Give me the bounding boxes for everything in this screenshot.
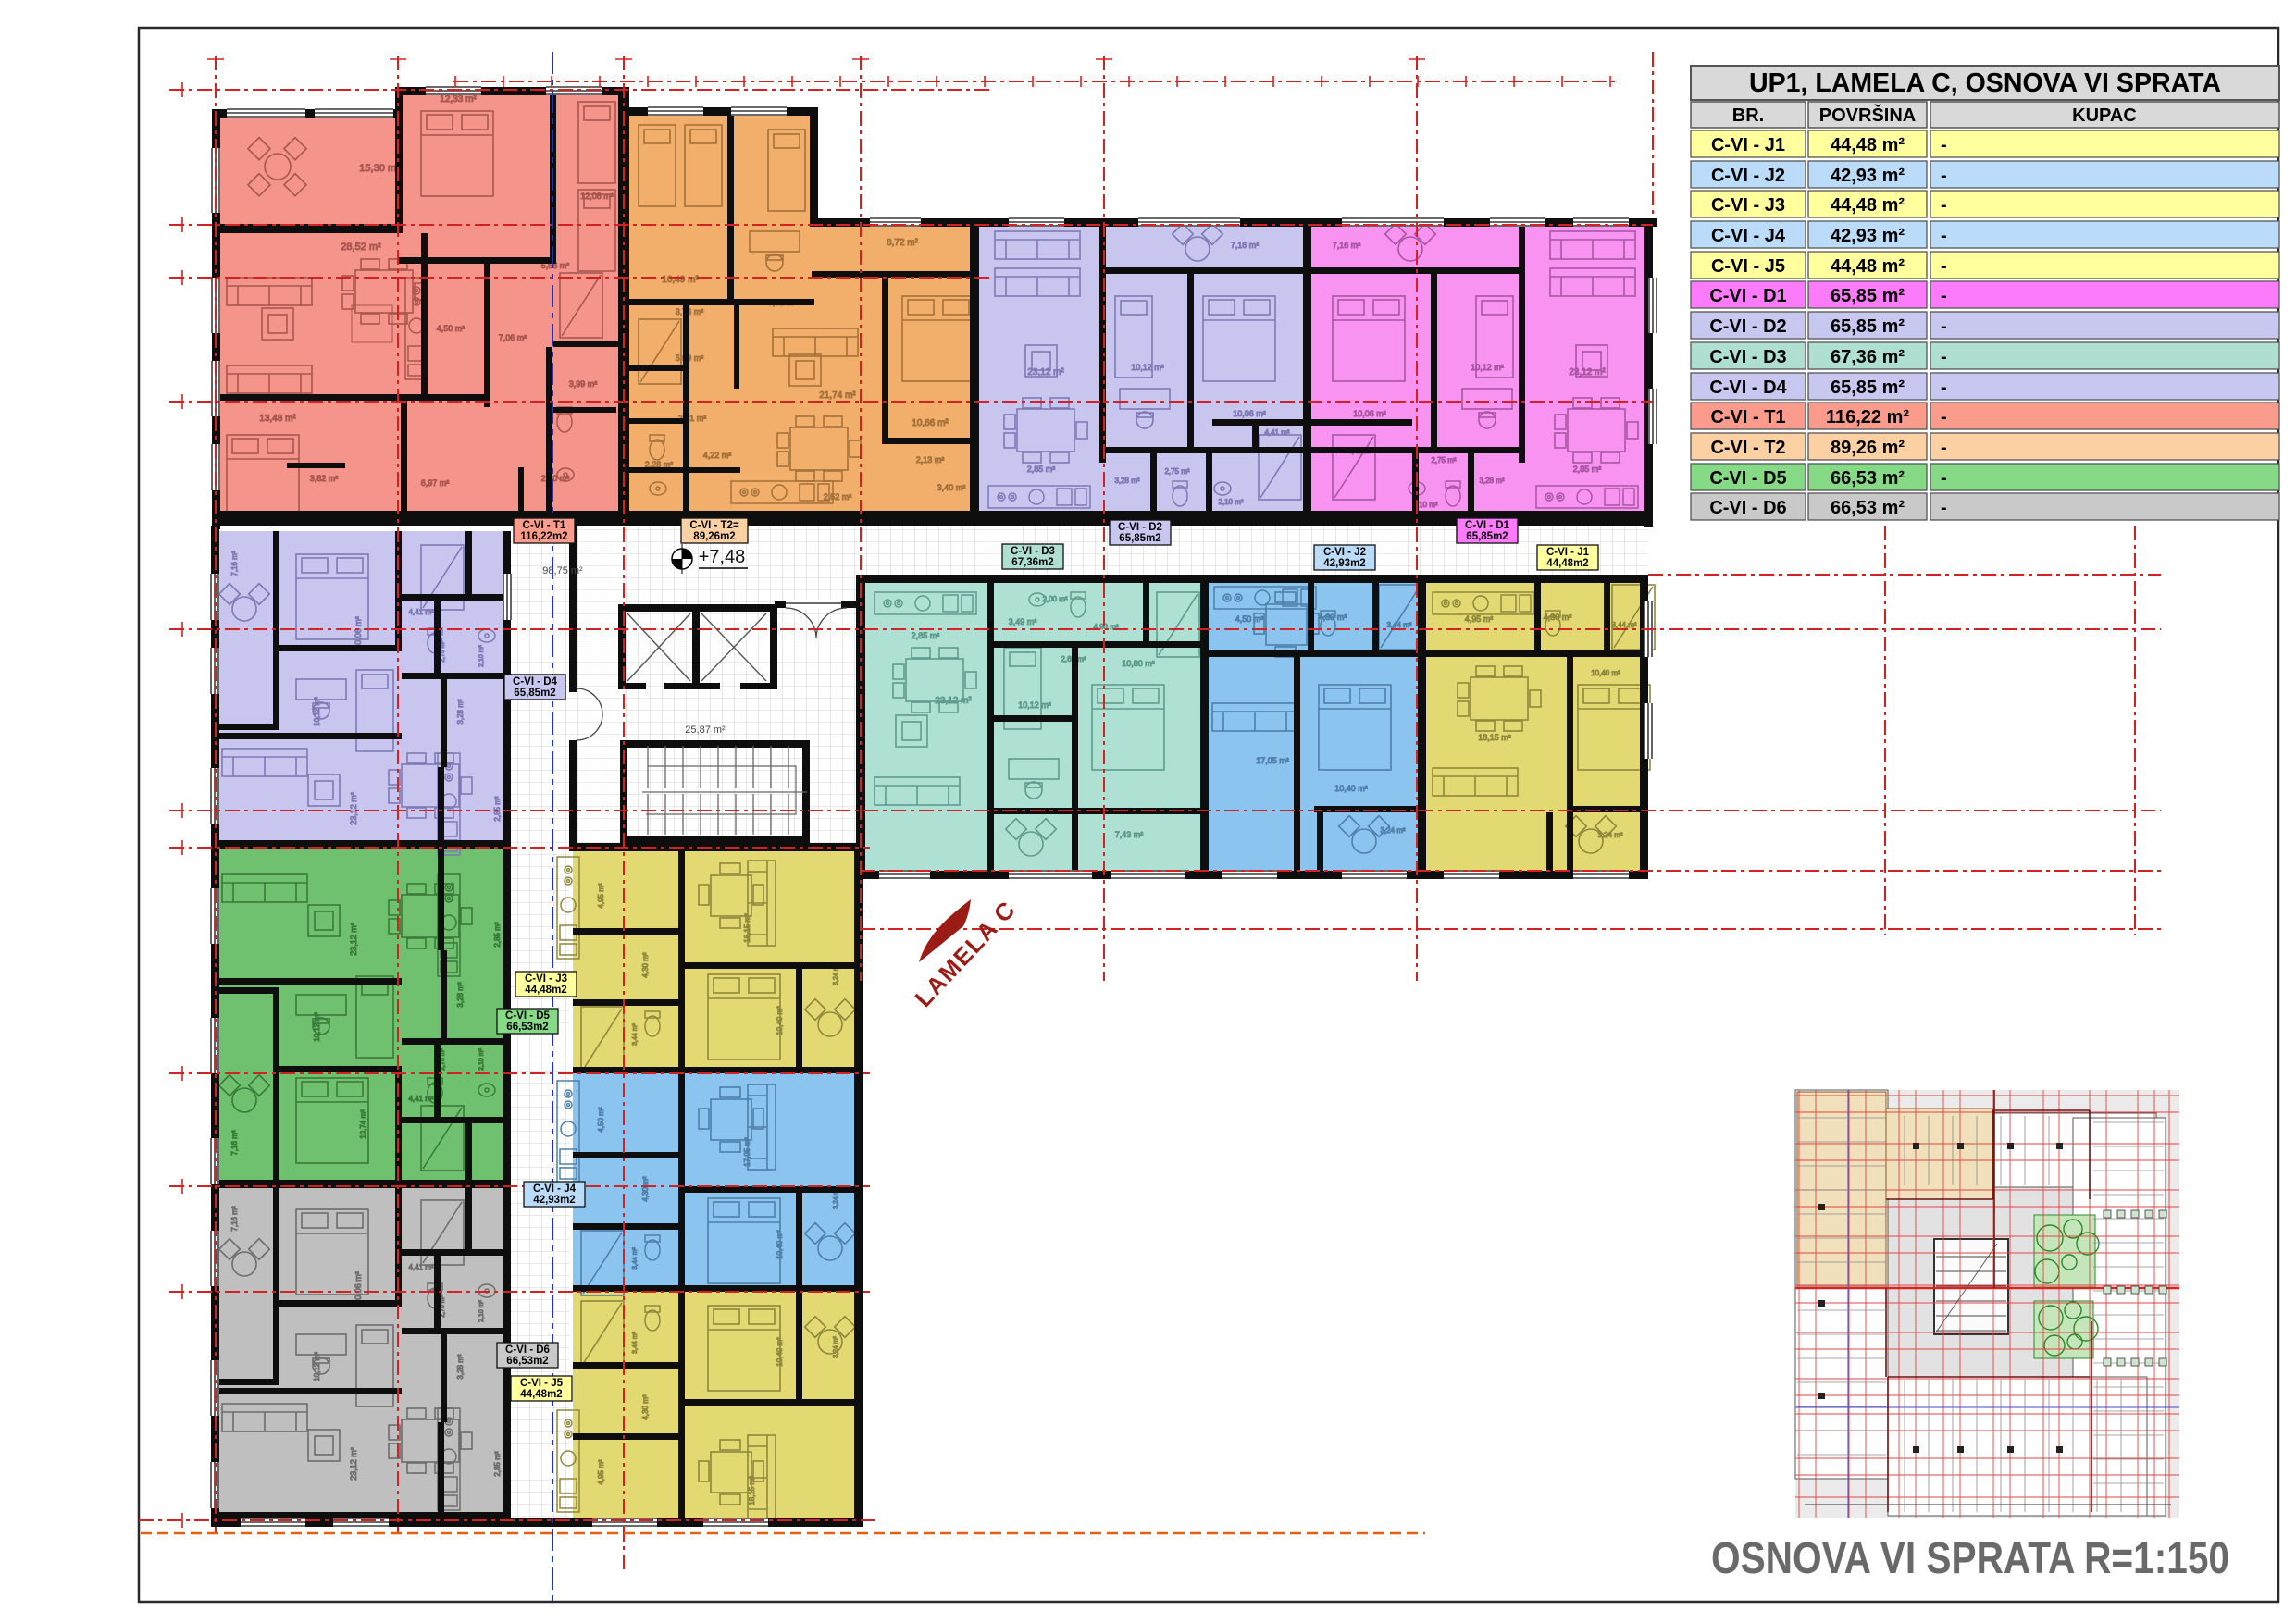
svg-text:-: - bbox=[1941, 438, 1947, 458]
svg-text:C-VI - D4: C-VI - D4 bbox=[513, 676, 558, 688]
svg-text:C-VI - J2: C-VI - J2 bbox=[1711, 166, 1785, 186]
svg-text:10,40 m²: 10,40 m² bbox=[1334, 784, 1368, 793]
svg-text:3,28 m²: 3,28 m² bbox=[456, 699, 465, 724]
svg-text:44,48 m²: 44,48 m² bbox=[1831, 195, 1905, 216]
svg-text:-: - bbox=[1941, 286, 1947, 306]
svg-text:C-VI - T1: C-VI - T1 bbox=[523, 520, 566, 531]
svg-text:44,48 m²: 44,48 m² bbox=[1831, 256, 1905, 277]
svg-text:18,15 m²: 18,15 m² bbox=[1478, 733, 1511, 742]
svg-text:23,12 m²: 23,12 m² bbox=[349, 923, 358, 956]
svg-text:C-VI - T2=: C-VI - T2= bbox=[689, 520, 739, 531]
svg-text:2,10 m²: 2,10 m² bbox=[478, 1047, 485, 1070]
svg-text:3,28 m²: 3,28 m² bbox=[1479, 477, 1504, 485]
svg-text:66,53 m²: 66,53 m² bbox=[1831, 468, 1905, 489]
svg-text:-: - bbox=[1941, 256, 1947, 277]
svg-text:65,85 m²: 65,85 m² bbox=[1831, 316, 1905, 337]
svg-text:C-VI - D4: C-VI - D4 bbox=[1709, 378, 1787, 398]
svg-text:-: - bbox=[1941, 347, 1947, 367]
svg-text:44,48m2: 44,48m2 bbox=[525, 985, 566, 996]
svg-text:10,12 m²: 10,12 m² bbox=[1471, 363, 1504, 372]
svg-text:66,53m2: 66,53m2 bbox=[506, 1356, 548, 1367]
svg-text:3,44 m²: 3,44 m² bbox=[632, 1246, 639, 1269]
svg-text:15,30 m²: 15,30 m² bbox=[359, 163, 400, 174]
svg-text:4,30 m²: 4,30 m² bbox=[641, 1176, 650, 1201]
svg-text:3,44 m²: 3,44 m² bbox=[632, 1331, 639, 1353]
svg-text:C-VI - D5: C-VI - D5 bbox=[1709, 468, 1786, 489]
svg-text:C-VI - D1: C-VI - D1 bbox=[1465, 520, 1510, 531]
svg-text:-: - bbox=[1941, 316, 1947, 337]
svg-text:3,44 m²: 3,44 m² bbox=[632, 1022, 639, 1045]
svg-text:4,41 m²: 4,41 m² bbox=[408, 1095, 433, 1103]
svg-text:2,10 m²: 2,10 m² bbox=[1218, 498, 1243, 506]
svg-text:10,06 m²: 10,06 m² bbox=[1353, 409, 1386, 418]
svg-text:2,75 m²: 2,75 m² bbox=[440, 1295, 446, 1317]
svg-text:10,12 m²: 10,12 m² bbox=[313, 1012, 321, 1042]
svg-text:23,12 m²: 23,12 m² bbox=[349, 792, 358, 825]
svg-text:2,85 m²: 2,85 m² bbox=[1573, 465, 1602, 474]
svg-text:2,75 m²: 2,75 m² bbox=[1164, 467, 1189, 476]
svg-text:6,97 m²: 6,97 m² bbox=[421, 478, 450, 488]
svg-text:44,48m2: 44,48m2 bbox=[520, 1389, 562, 1400]
svg-text:65,85 m²: 65,85 m² bbox=[1831, 286, 1905, 306]
svg-text:44,48m2: 44,48m2 bbox=[1546, 558, 1588, 569]
svg-text:10,49 m²: 10,49 m² bbox=[662, 275, 699, 285]
svg-text:89,26 m²: 89,26 m² bbox=[1831, 438, 1905, 458]
svg-text:10,40 m²: 10,40 m² bbox=[776, 1006, 784, 1035]
svg-text:2,85 m²: 2,85 m² bbox=[493, 796, 502, 821]
svg-text:10,74 m²: 10,74 m² bbox=[359, 1109, 367, 1139]
svg-text:66,53 m²: 66,53 m² bbox=[1831, 498, 1905, 518]
svg-text:25,87 m²: 25,87 m² bbox=[685, 725, 726, 736]
svg-text:POVRŠINA: POVRŠINA bbox=[1819, 104, 1916, 126]
svg-text:42,93 m²: 42,93 m² bbox=[1831, 166, 1905, 186]
svg-text:4,50 m²: 4,50 m² bbox=[597, 1107, 605, 1132]
svg-text:C-VI - J5: C-VI - J5 bbox=[1711, 256, 1785, 277]
svg-text:17,05 m²: 17,05 m² bbox=[1256, 756, 1289, 765]
svg-text:98,75 m²: 98,75 m² bbox=[542, 565, 583, 576]
svg-text:65,85m2: 65,85m2 bbox=[1466, 531, 1508, 542]
svg-text:7,16 m²: 7,16 m² bbox=[1231, 241, 1260, 250]
svg-text:66,53m2: 66,53m2 bbox=[506, 1022, 548, 1033]
svg-text:42,93m2: 42,93m2 bbox=[1323, 558, 1365, 569]
svg-text:12,08 m²: 12,08 m² bbox=[580, 192, 614, 201]
svg-text:65,85m2: 65,85m2 bbox=[514, 688, 555, 699]
svg-text:7,16 m²: 7,16 m² bbox=[230, 1206, 239, 1231]
svg-text:7,06 m²: 7,06 m² bbox=[499, 333, 527, 342]
svg-text:7,16 m²: 7,16 m² bbox=[1333, 241, 1361, 250]
svg-text:C-VI - D2: C-VI - D2 bbox=[1709, 316, 1786, 337]
svg-text:2,85 m²: 2,85 m² bbox=[912, 631, 940, 640]
svg-text:10,12 m²: 10,12 m² bbox=[1018, 700, 1051, 710]
svg-text:10,40 m²: 10,40 m² bbox=[1591, 669, 1620, 677]
svg-text:4,50 m²: 4,50 m² bbox=[437, 324, 465, 333]
svg-text:-: - bbox=[1941, 498, 1947, 518]
svg-text:4,22 m²: 4,22 m² bbox=[703, 451, 732, 460]
svg-text:65,85 m²: 65,85 m² bbox=[1831, 378, 1905, 398]
svg-text:2,75 m²: 2,75 m² bbox=[440, 639, 446, 662]
svg-text:C-VI - J3: C-VI - J3 bbox=[525, 973, 567, 985]
svg-text:2,52 m²: 2,52 m² bbox=[824, 492, 852, 502]
svg-text:10,80 m²: 10,80 m² bbox=[1122, 659, 1155, 668]
svg-text:UP1, LAMELA C, OSNOVA VI SPRAT: UP1, LAMELA C, OSNOVA VI SPRATA bbox=[1749, 68, 2221, 98]
svg-text:65,85m2: 65,85m2 bbox=[1119, 533, 1160, 544]
svg-text:3,28 m²: 3,28 m² bbox=[456, 982, 465, 1007]
svg-text:42,93m2: 42,93m2 bbox=[533, 1195, 575, 1206]
svg-text:C-VI - J4: C-VI - J4 bbox=[533, 1183, 577, 1195]
svg-text:7,16 m²: 7,16 m² bbox=[230, 551, 239, 576]
svg-text:116,22m2: 116,22m2 bbox=[520, 531, 567, 542]
svg-text:4,95 m²: 4,95 m² bbox=[1465, 614, 1494, 624]
svg-text:-: - bbox=[1941, 195, 1947, 216]
svg-text:18,15 m²: 18,15 m² bbox=[743, 913, 751, 943]
svg-text:89,26m2: 89,26m2 bbox=[693, 531, 735, 542]
svg-text:2,10 m²: 2,10 m² bbox=[478, 1299, 485, 1321]
svg-text:-: - bbox=[1941, 226, 1947, 246]
svg-text:10,66 m²: 10,66 m² bbox=[912, 418, 949, 428]
svg-text:2,85 m²: 2,85 m² bbox=[493, 922, 502, 947]
svg-text:3,44 m²: 3,44 m² bbox=[1611, 621, 1636, 629]
svg-text:+7,48: +7,48 bbox=[699, 547, 746, 567]
svg-text:C-VI - D1: C-VI - D1 bbox=[1709, 286, 1786, 306]
svg-text:-: - bbox=[1941, 378, 1947, 398]
svg-text:BR.: BR. bbox=[1732, 105, 1764, 126]
svg-text:4,41 m²: 4,41 m² bbox=[408, 608, 433, 616]
svg-text:3,28 m²: 3,28 m² bbox=[1114, 477, 1139, 485]
svg-text:3,40 m²: 3,40 m² bbox=[937, 483, 966, 492]
svg-text:2,10 m²: 2,10 m² bbox=[478, 644, 485, 666]
svg-text:2,85 m²: 2,85 m² bbox=[493, 1451, 502, 1476]
svg-text:2,70 m²: 2,70 m² bbox=[541, 474, 570, 483]
svg-text:3,24 m²: 3,24 m² bbox=[1380, 826, 1405, 835]
svg-text:28,52 m²: 28,52 m² bbox=[341, 242, 381, 253]
svg-text:12,33 m²: 12,33 m² bbox=[440, 94, 477, 105]
svg-text:2,75 m²: 2,75 m² bbox=[1431, 456, 1456, 465]
svg-text:C-VI - J1: C-VI - J1 bbox=[1711, 135, 1785, 155]
svg-text:116,22 m²: 116,22 m² bbox=[1826, 407, 1909, 427]
svg-text:C-VI - D2: C-VI - D2 bbox=[1118, 522, 1162, 533]
svg-text:2,13 m²: 2,13 m² bbox=[916, 455, 945, 465]
svg-text:10,12 m²: 10,12 m² bbox=[313, 1352, 321, 1381]
svg-text:C-VI - J4: C-VI - J4 bbox=[1711, 226, 1786, 246]
svg-text:10,40 m²: 10,40 m² bbox=[776, 1230, 784, 1259]
svg-text:21,74 m²: 21,74 m² bbox=[819, 390, 856, 401]
svg-text:7,43 m²: 7,43 m² bbox=[1115, 830, 1144, 839]
svg-text:4,95 m²: 4,95 m² bbox=[597, 1459, 605, 1484]
svg-text:8,72 m²: 8,72 m² bbox=[887, 238, 919, 248]
svg-text:23,12 m²: 23,12 m² bbox=[935, 696, 972, 706]
svg-text:23,12 m²: 23,12 m² bbox=[349, 1447, 358, 1481]
svg-text:10,06 m²: 10,06 m² bbox=[354, 616, 363, 650]
svg-text:7,16 m²: 7,16 m² bbox=[230, 1130, 239, 1155]
svg-text:67,36 m²: 67,36 m² bbox=[1831, 347, 1905, 367]
svg-text:C-VI - J2: C-VI - J2 bbox=[1323, 547, 1366, 558]
svg-text:23,12 m²: 23,12 m² bbox=[1569, 367, 1606, 378]
svg-text:OSNOVA VI SPRATA R=1:150: OSNOVA VI SPRATA R=1:150 bbox=[1711, 1534, 2229, 1583]
svg-text:4,41 m²: 4,41 m² bbox=[1264, 428, 1289, 437]
svg-text:13,48 m²: 13,48 m² bbox=[259, 414, 296, 424]
svg-text:C-VI - D6: C-VI - D6 bbox=[505, 1344, 550, 1356]
svg-text:3,99 m²: 3,99 m² bbox=[569, 379, 598, 389]
svg-text:C-VI - D6: C-VI - D6 bbox=[1709, 498, 1786, 518]
svg-text:C-VI - D5: C-VI - D5 bbox=[505, 1010, 551, 1022]
svg-text:10,40 m²: 10,40 m² bbox=[776, 1337, 784, 1367]
svg-text:23,12 m²: 23,12 m² bbox=[1027, 367, 1064, 378]
svg-text:3,44 m²: 3,44 m² bbox=[1386, 621, 1411, 629]
svg-text:C-VI - J5: C-VI - J5 bbox=[520, 1378, 564, 1389]
svg-text:3,24 m²: 3,24 m² bbox=[1597, 831, 1622, 839]
svg-text:10,12 m²: 10,12 m² bbox=[313, 697, 321, 726]
svg-text:3,82 m²: 3,82 m² bbox=[310, 474, 339, 483]
svg-text:10,12 m²: 10,12 m² bbox=[1131, 363, 1164, 372]
svg-text:44,48 m²: 44,48 m² bbox=[1831, 135, 1905, 155]
svg-text:-: - bbox=[1941, 468, 1947, 489]
svg-text:4,50 m²: 4,50 m² bbox=[1235, 614, 1264, 624]
svg-text:18,15 m²: 18,15 m² bbox=[748, 1476, 756, 1505]
svg-text:42,93 m²: 42,93 m² bbox=[1831, 226, 1905, 246]
svg-text:-: - bbox=[1941, 166, 1947, 186]
svg-text:3,28 m²: 3,28 m² bbox=[456, 1354, 465, 1379]
svg-text:17,05 m²: 17,05 m² bbox=[743, 1137, 751, 1167]
svg-text:4,30 m²: 4,30 m² bbox=[641, 1394, 650, 1419]
svg-text:-: - bbox=[1941, 407, 1947, 427]
svg-text:C-VI - T2: C-VI - T2 bbox=[1710, 438, 1785, 458]
svg-text:2,75 m²: 2,75 m² bbox=[440, 1047, 446, 1070]
svg-text:C-VI - J1: C-VI - J1 bbox=[1546, 547, 1590, 558]
svg-text:C-VI - T1: C-VI - T1 bbox=[1710, 407, 1785, 427]
svg-text:-: - bbox=[1941, 135, 1947, 155]
svg-text:C-VI - D3: C-VI - D3 bbox=[1011, 546, 1055, 557]
svg-text:C-VI - J3: C-VI - J3 bbox=[1711, 195, 1785, 216]
svg-text:3,24 m²: 3,24 m² bbox=[833, 1335, 839, 1357]
svg-text:C-VI - D3: C-VI - D3 bbox=[1709, 347, 1786, 367]
svg-text:67,36m2: 67,36m2 bbox=[1011, 557, 1053, 568]
svg-text:4,95 m²: 4,95 m² bbox=[597, 883, 605, 908]
svg-text:KUPAC: KUPAC bbox=[2072, 105, 2137, 126]
svg-text:10,06 m²: 10,06 m² bbox=[1233, 409, 1266, 418]
svg-text:3,49 m²: 3,49 m² bbox=[1009, 617, 1037, 626]
svg-text:2,85 m²: 2,85 m² bbox=[1027, 465, 1056, 474]
svg-text:4,30 m²: 4,30 m² bbox=[641, 952, 650, 977]
svg-text:4,41 m²: 4,41 m² bbox=[408, 1263, 433, 1271]
svg-text:10,06 m²: 10,06 m² bbox=[354, 1271, 363, 1305]
